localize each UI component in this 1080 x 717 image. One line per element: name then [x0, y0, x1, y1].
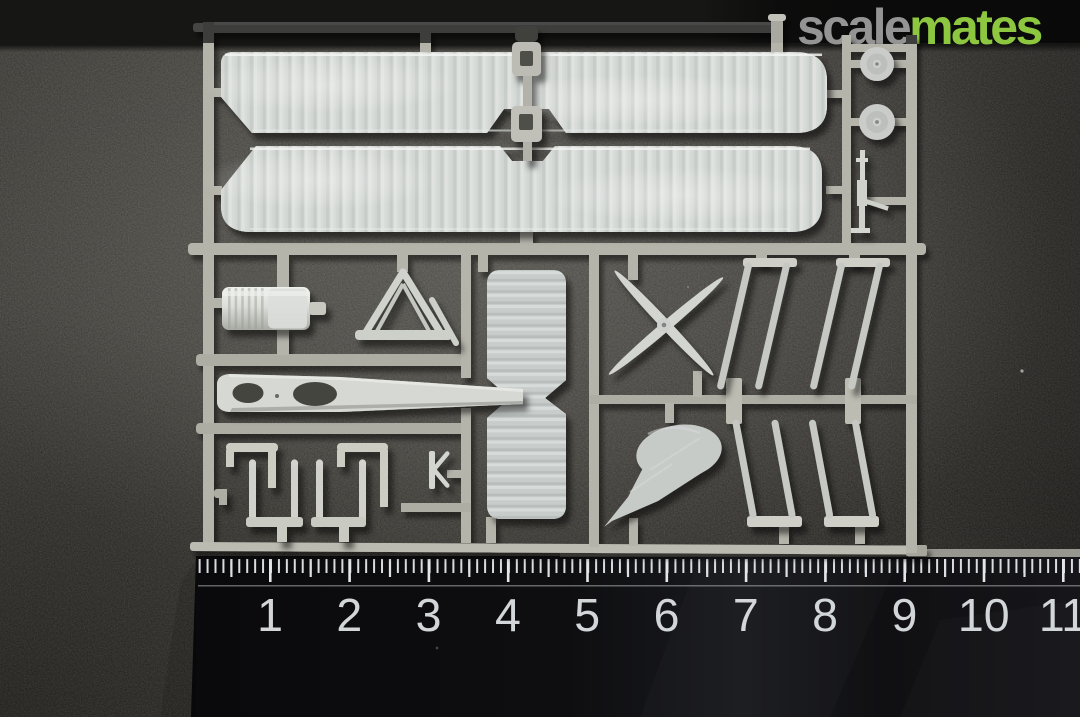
svg-text:10: 10	[958, 589, 1010, 641]
svg-text:5: 5	[574, 589, 600, 641]
svg-text:4: 4	[495, 589, 521, 641]
svg-text:2: 2	[336, 589, 362, 641]
svg-text:1: 1	[257, 589, 283, 641]
svg-text:11: 11	[1039, 589, 1080, 641]
svg-text:3: 3	[416, 589, 442, 641]
svg-text:8: 8	[812, 589, 838, 641]
svg-text:scalemates: scalemates	[797, 0, 1041, 55]
svg-text:7: 7	[733, 589, 759, 641]
svg-text:9: 9	[891, 589, 917, 641]
svg-text:6: 6	[654, 589, 680, 641]
